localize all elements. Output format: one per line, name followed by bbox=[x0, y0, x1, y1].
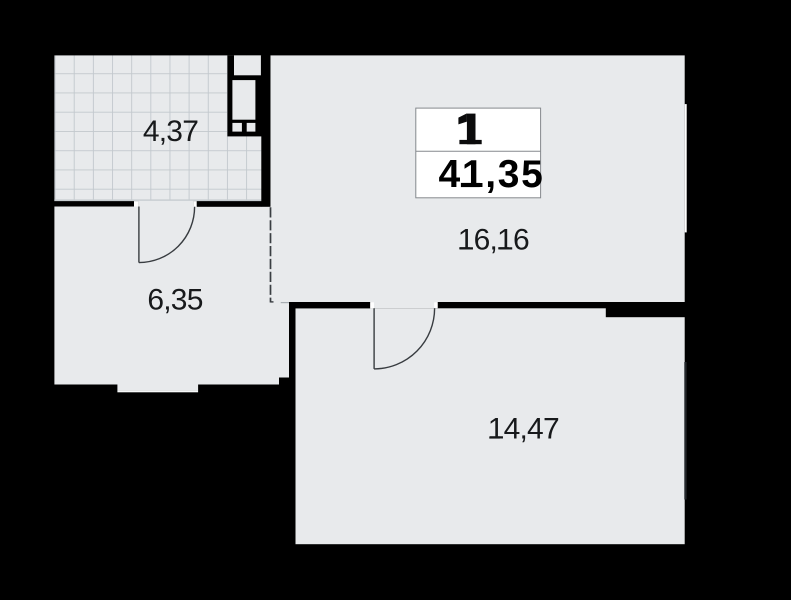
svg-text:14,47: 14,47 bbox=[488, 413, 559, 446]
svg-text:4,37: 4,37 bbox=[143, 115, 198, 148]
svg-text:41,35: 41,35 bbox=[438, 153, 544, 196]
svg-text:16,16: 16,16 bbox=[458, 223, 529, 256]
svg-text:6,35: 6,35 bbox=[147, 283, 202, 316]
